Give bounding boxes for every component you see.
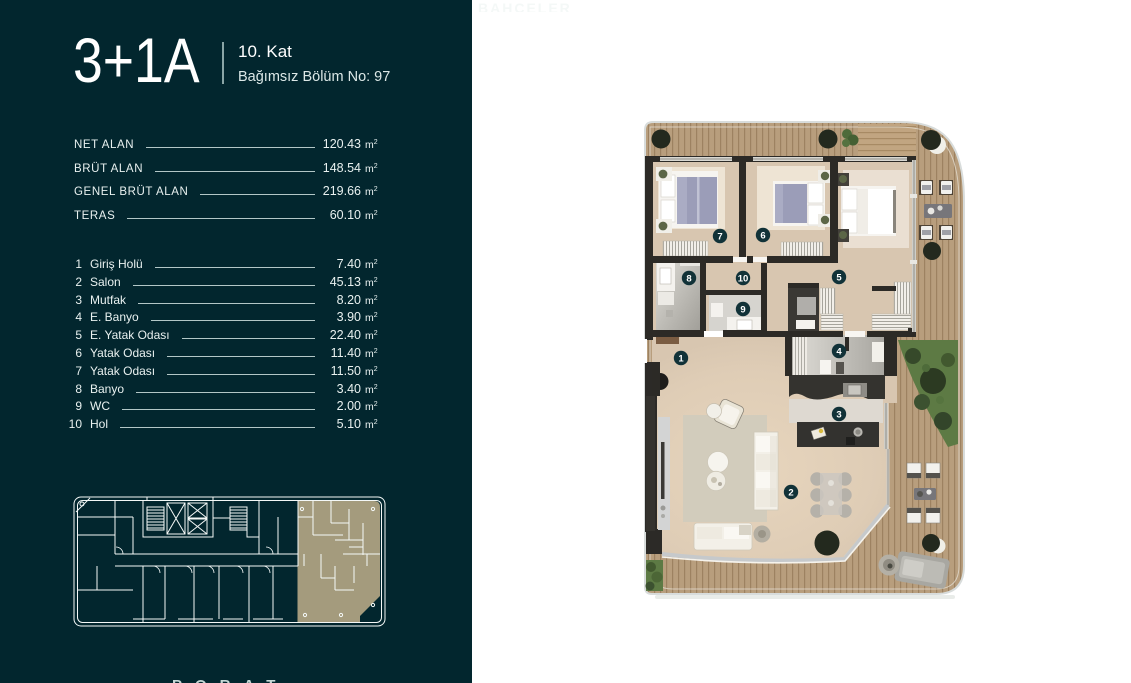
- svg-text:6: 6: [760, 231, 765, 242]
- svg-text:7: 7: [717, 232, 722, 243]
- svg-text:4: 4: [836, 347, 842, 358]
- svg-text:1: 1: [678, 354, 684, 365]
- svg-text:3: 3: [836, 410, 841, 421]
- svg-text:9: 9: [740, 305, 745, 316]
- svg-text:8: 8: [686, 274, 691, 285]
- svg-text:2: 2: [788, 488, 793, 499]
- svg-text:10: 10: [738, 274, 749, 285]
- svg-text:5: 5: [836, 273, 842, 284]
